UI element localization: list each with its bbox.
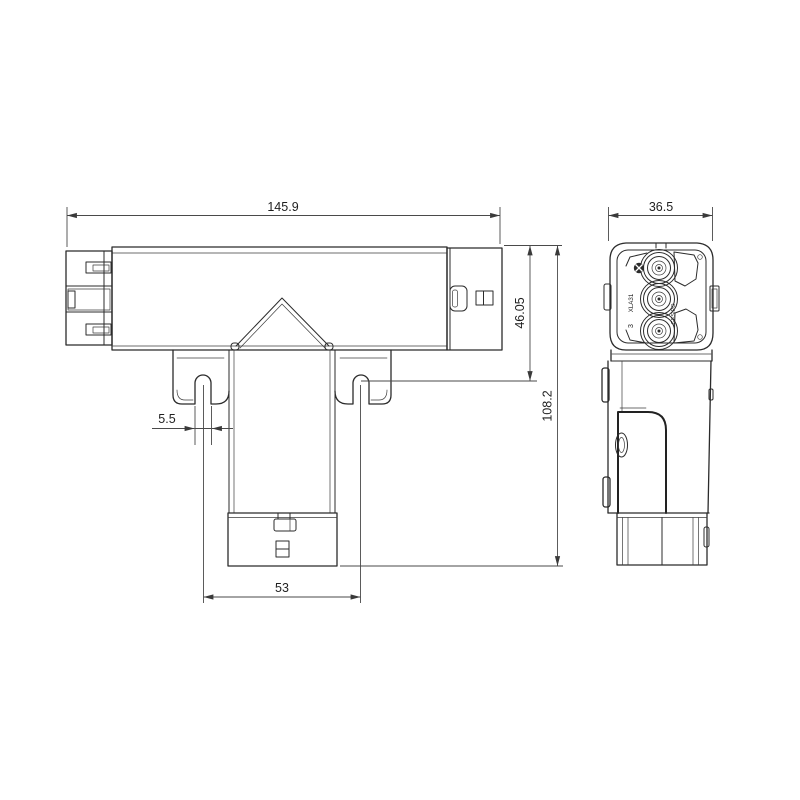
face-marking-left-number: 3	[628, 324, 635, 328]
dimension-label-hook-spacing: 53	[275, 581, 289, 595]
dimension-label-slot-width: 5.5	[158, 412, 175, 426]
technical-drawing: XLA31 3 GESIPO	[0, 0, 800, 800]
dimension-label-side-width: 36.5	[649, 200, 673, 214]
background	[0, 0, 800, 800]
drawing-canvas: XLA31 3 GESIPO	[0, 0, 800, 800]
dimension-label-upper-body-height: 46.05	[513, 297, 527, 328]
screw-head	[634, 263, 644, 273]
dimension-label-overall-height: 108.2	[541, 390, 555, 421]
face-marking-left: XLA31	[628, 293, 635, 312]
dimension-label-overall-width: 145.9	[267, 200, 298, 214]
face-marking-right: GESIPO	[671, 303, 677, 325]
